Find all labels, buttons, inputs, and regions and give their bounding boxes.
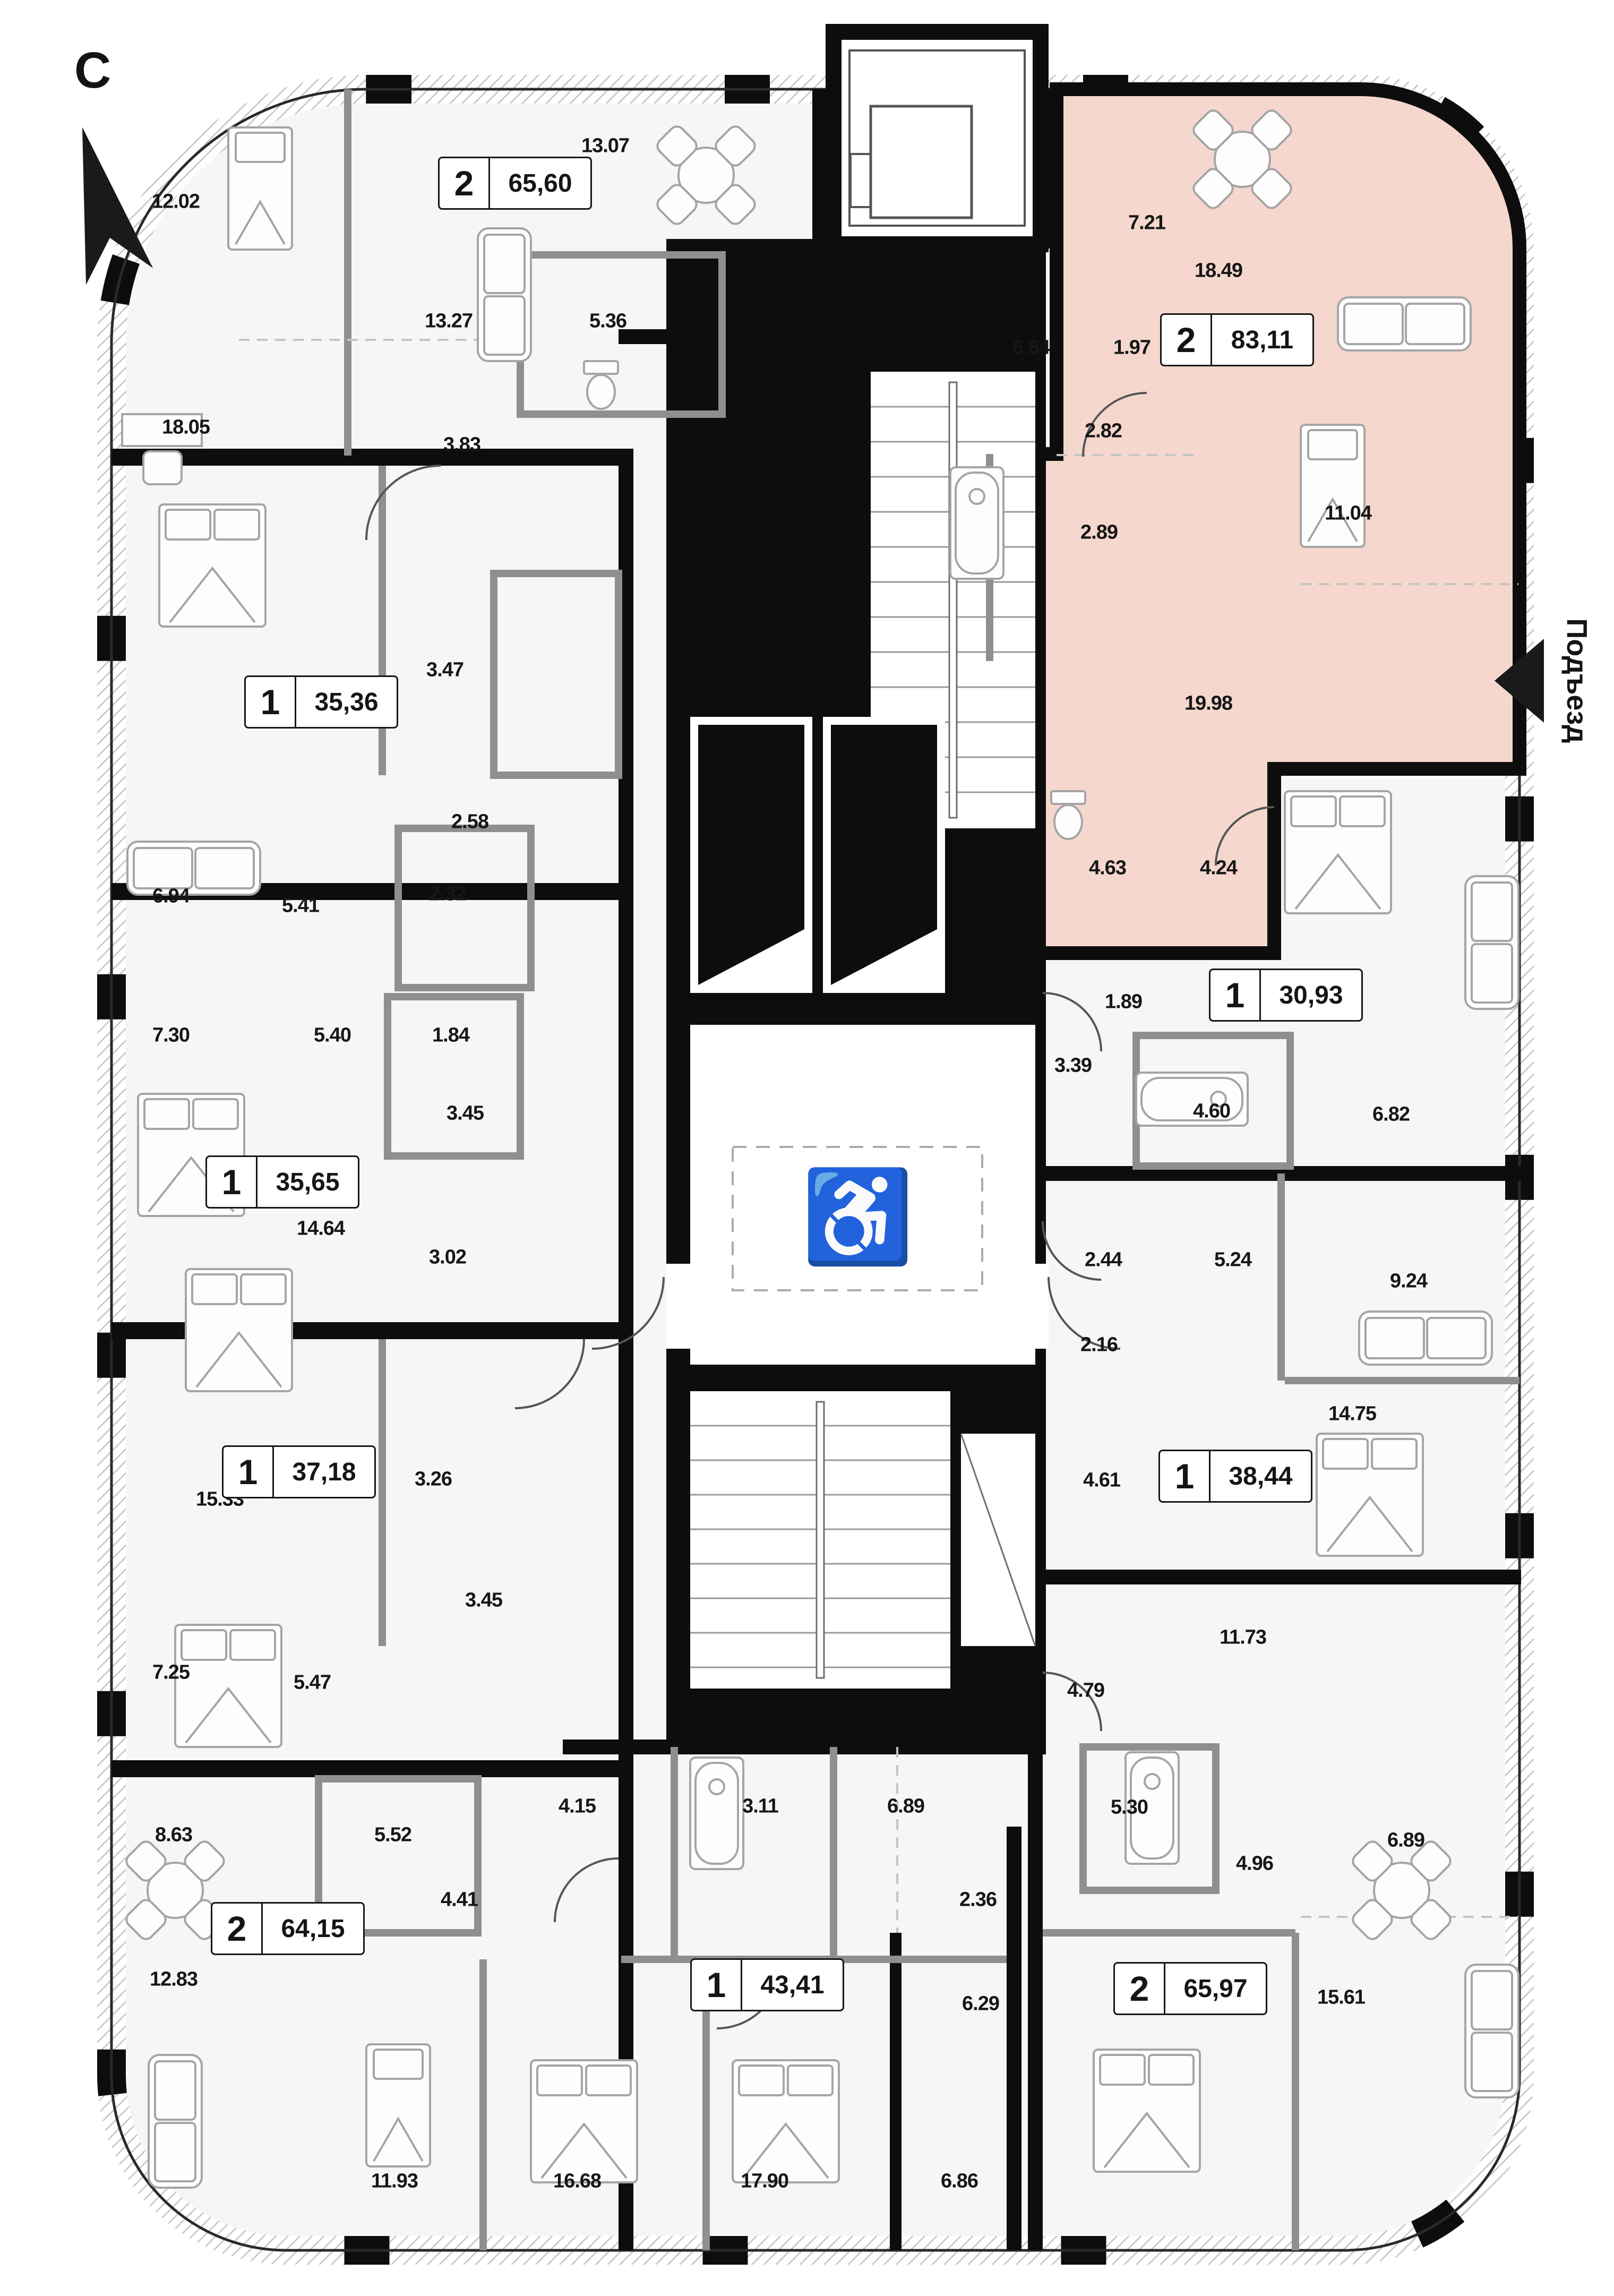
room-area-label: 4.63	[1089, 857, 1126, 880]
apartment-area: 37,18	[274, 1447, 374, 1497]
apartment-badge-3536[interactable]: 1 35,36	[244, 675, 398, 729]
room-area-label: 2.58	[451, 811, 488, 834]
room-area-label: 1.97	[1113, 337, 1151, 359]
apartment-area: 35,65	[257, 1157, 358, 1207]
room-area-label: 3.26	[415, 1468, 452, 1491]
apartment-rooms: 1	[692, 1960, 742, 2010]
room-area-label: 11.73	[1220, 1626, 1266, 1649]
apartment-rooms: 2	[212, 1904, 263, 1954]
apartment-badge-3844[interactable]: 1 38,44	[1158, 1450, 1312, 1503]
apartment-area: 35,36	[296, 677, 397, 727]
wheelchair-icon: ♿	[801, 1166, 914, 1268]
room-area-label: 3.02	[429, 1246, 466, 1269]
compass-label: С	[74, 42, 111, 99]
room-area-label: 6.64	[1012, 337, 1050, 359]
room-area-label: 14.75	[1328, 1403, 1376, 1426]
room-area-label: 6.29	[962, 1993, 999, 2016]
apartment-area: 43,41	[742, 1960, 843, 2010]
room-area-label: 3.45	[465, 1589, 502, 1612]
apartment-rooms: 2	[1115, 1964, 1165, 2014]
room-area-label: 2.36	[959, 1889, 997, 1912]
room-area-label: 12.83	[150, 1968, 198, 1991]
room-area-label: 4.79	[1067, 1680, 1104, 1702]
vestibule	[834, 32, 1041, 244]
room-area-label: 13.07	[581, 135, 629, 158]
apartment-area: 38,44	[1210, 1451, 1311, 1501]
room-area-label: 4.24	[1200, 857, 1237, 880]
room-area-label: 2.82	[1085, 420, 1122, 443]
room-area-label: 11.93	[371, 2170, 418, 2193]
apartment-badge-3718[interactable]: 1 37,18	[222, 1445, 376, 1498]
room-area-label: 2.32	[429, 883, 466, 906]
room-area-label: 4.41	[441, 1889, 478, 1912]
room-area-label: 7.25	[152, 1661, 190, 1684]
apartment-badge-3565[interactable]: 1 35,65	[205, 1155, 359, 1209]
elevator-lobby: ♿	[666, 1025, 1049, 1365]
service-shaft	[961, 1434, 1035, 1646]
room-area-label: 15.61	[1317, 1986, 1365, 2009]
apartment-badge-3093[interactable]: 1 30,93	[1209, 969, 1363, 1022]
apartment-rooms: 1	[1210, 970, 1261, 1020]
room-area-label: 2.16	[1080, 1334, 1118, 1357]
apartment-rooms: 1	[224, 1447, 274, 1497]
apartment-badge-4341[interactable]: 1 43,41	[690, 1958, 844, 2011]
room-area-label: 1.84	[432, 1024, 469, 1047]
room-area-label: 3.47	[426, 659, 463, 682]
stairwell-bottom	[690, 1391, 950, 1689]
room-area-label: 6.94	[152, 885, 190, 908]
room-area-label: 5.41	[282, 895, 319, 918]
room-area-label: 2.89	[1080, 521, 1118, 544]
room-area-label: 3.83	[443, 434, 480, 457]
room-area-label: 5.47	[294, 1672, 331, 1694]
compass: С	[49, 42, 153, 285]
room-area-label: 3.39	[1054, 1055, 1092, 1077]
room-area-label: 8.63	[155, 1824, 192, 1847]
apartment-area: 83,11	[1212, 315, 1312, 365]
room-area-label: 14.64	[297, 1218, 345, 1240]
apartment-rooms: 2	[440, 158, 490, 208]
apartment-area: 65,60	[490, 158, 590, 208]
apartment-area: 30,93	[1261, 970, 1361, 1020]
room-area-label: 6.89	[1387, 1829, 1424, 1852]
apartment-area: 65,97	[1165, 1964, 1266, 2014]
room-area-label: 7.30	[152, 1024, 190, 1047]
room-area-label: 5.30	[1111, 1796, 1148, 1819]
room-area-label: 11.04	[1325, 502, 1371, 525]
apartment-rooms: 2	[1162, 315, 1212, 365]
room-area-label: 6.86	[941, 2170, 978, 2193]
room-area-label: 5.40	[314, 1024, 351, 1047]
apartment-badge-6597[interactable]: 2 65,97	[1113, 1962, 1267, 2015]
apartment-rooms: 1	[1160, 1451, 1210, 1501]
apartment-badge-6415[interactable]: 2 64,15	[211, 1902, 365, 1955]
apartment-area: 64,15	[263, 1904, 363, 1954]
room-area-label: 5.36	[589, 310, 626, 333]
room-area-label: 6.89	[887, 1795, 924, 1818]
apartment-rooms: 1	[246, 677, 296, 727]
room-area-label: 18.05	[162, 416, 210, 439]
apartment-rooms: 1	[207, 1157, 257, 1207]
room-area-label: 18.49	[1195, 260, 1242, 282]
apartment-badge-8311-highlighted[interactable]: 2 83,11	[1160, 313, 1314, 366]
room-area-label: 17.90	[741, 2170, 788, 2193]
room-area-label: 3.11	[742, 1795, 778, 1818]
room-area-label: 6.82	[1372, 1103, 1410, 1126]
room-area-label: 4.96	[1236, 1853, 1273, 1875]
room-area-label: 16.68	[553, 2170, 601, 2193]
room-area-label: 9.24	[1390, 1270, 1427, 1293]
room-area-label: 13.27	[425, 310, 473, 333]
room-area-label: 1.89	[1105, 991, 1142, 1014]
room-area-label: 19.98	[1184, 692, 1232, 715]
room-area-label: 2.44	[1085, 1249, 1122, 1272]
floor-plan: ♿	[0, 0, 1614, 2296]
room-area-label: 4.61	[1083, 1469, 1120, 1492]
apartment-badge-6560[interactable]: 2 65,60	[438, 157, 592, 210]
room-area-label: 3.45	[447, 1102, 484, 1125]
room-area-label: 5.52	[374, 1824, 411, 1847]
entrance-label: Подъезд	[1561, 618, 1593, 743]
room-area-label: 4.60	[1193, 1100, 1230, 1123]
room-area-label: 5.24	[1214, 1249, 1251, 1272]
room-area-label: 7.21	[1128, 212, 1165, 235]
room-area-label: 4.15	[559, 1795, 596, 1818]
room-area-label: 12.02	[152, 191, 200, 213]
